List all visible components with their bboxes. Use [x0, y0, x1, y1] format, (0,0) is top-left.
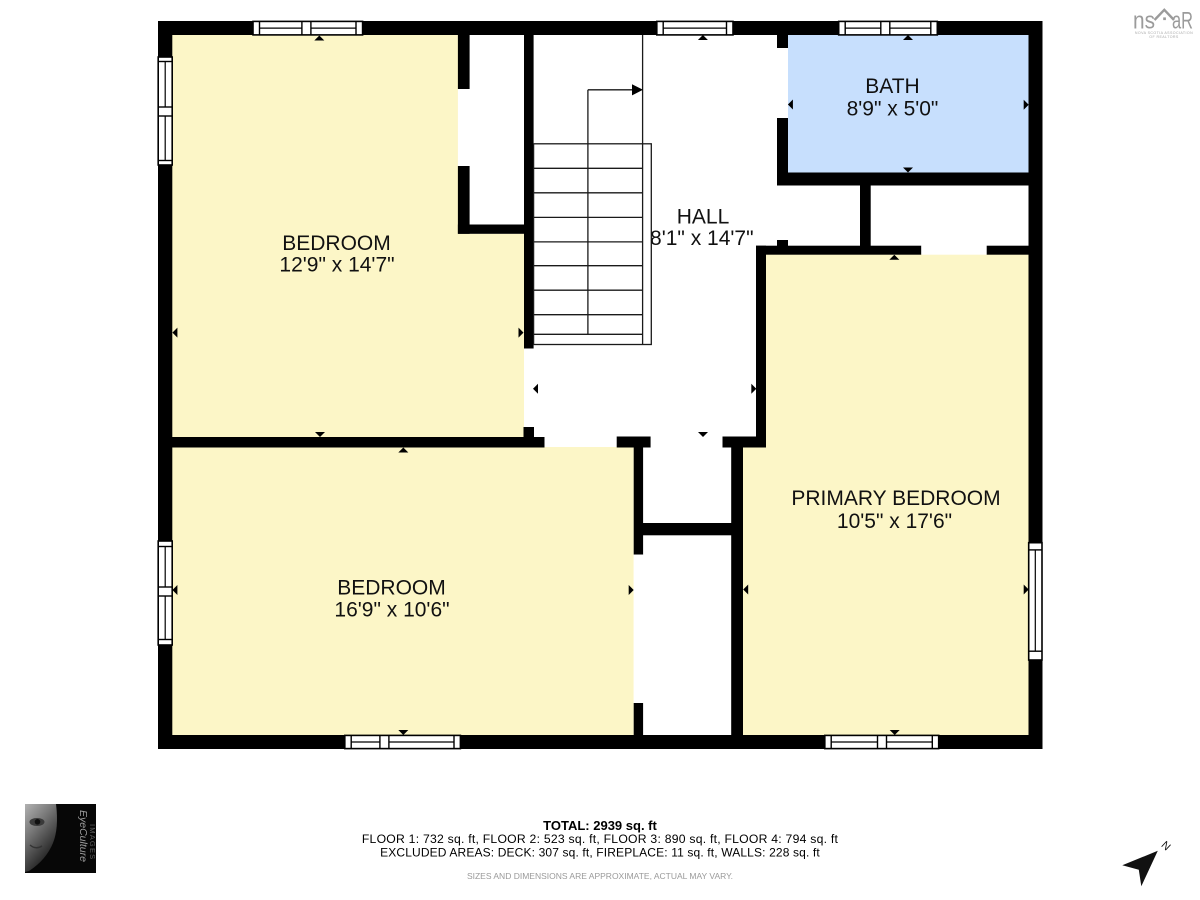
svg-text:10'5" x 17'6": 10'5" x 17'6" [837, 510, 952, 533]
svg-text:TOTAL: 2939 sq. ft: TOTAL: 2939 sq. ft [543, 818, 657, 833]
svg-text:OF REALTORS: OF REALTORS [1149, 35, 1179, 39]
svg-text:EXCLUDED AREAS: DECK: 307 sq.: EXCLUDED AREAS: DECK: 307 sq. ft, FIREPL… [380, 845, 820, 859]
svg-text:BEDROOM: BEDROOM [282, 232, 391, 255]
svg-text:BATH: BATH [865, 75, 919, 98]
svg-text:8'1" x 14'7": 8'1" x 14'7" [650, 227, 754, 250]
svg-text:HALL: HALL [677, 206, 730, 229]
svg-text:PRIMARY BEDROOM: PRIMARY BEDROOM [791, 487, 1000, 510]
svg-text:EyeCulture: EyeCulture [77, 810, 89, 862]
svg-text:BEDROOM: BEDROOM [337, 577, 446, 600]
svg-text:SIZES AND DIMENSIONS ARE APPRO: SIZES AND DIMENSIONS ARE APPROXIMATE, AC… [467, 871, 733, 881]
svg-text:12'9" x 14'7": 12'9" x 14'7" [279, 254, 394, 277]
svg-text:FLOOR 1: 732 sq. ft, FLOOR 2:: FLOOR 1: 732 sq. ft, FLOOR 2: 523 sq. ft… [362, 832, 839, 846]
svg-text:IMAGES: IMAGES [88, 824, 97, 860]
svg-text:8'9" x 5'0": 8'9" x 5'0" [847, 98, 939, 121]
svg-text:16'9" x 10'6": 16'9" x 10'6" [334, 599, 449, 622]
